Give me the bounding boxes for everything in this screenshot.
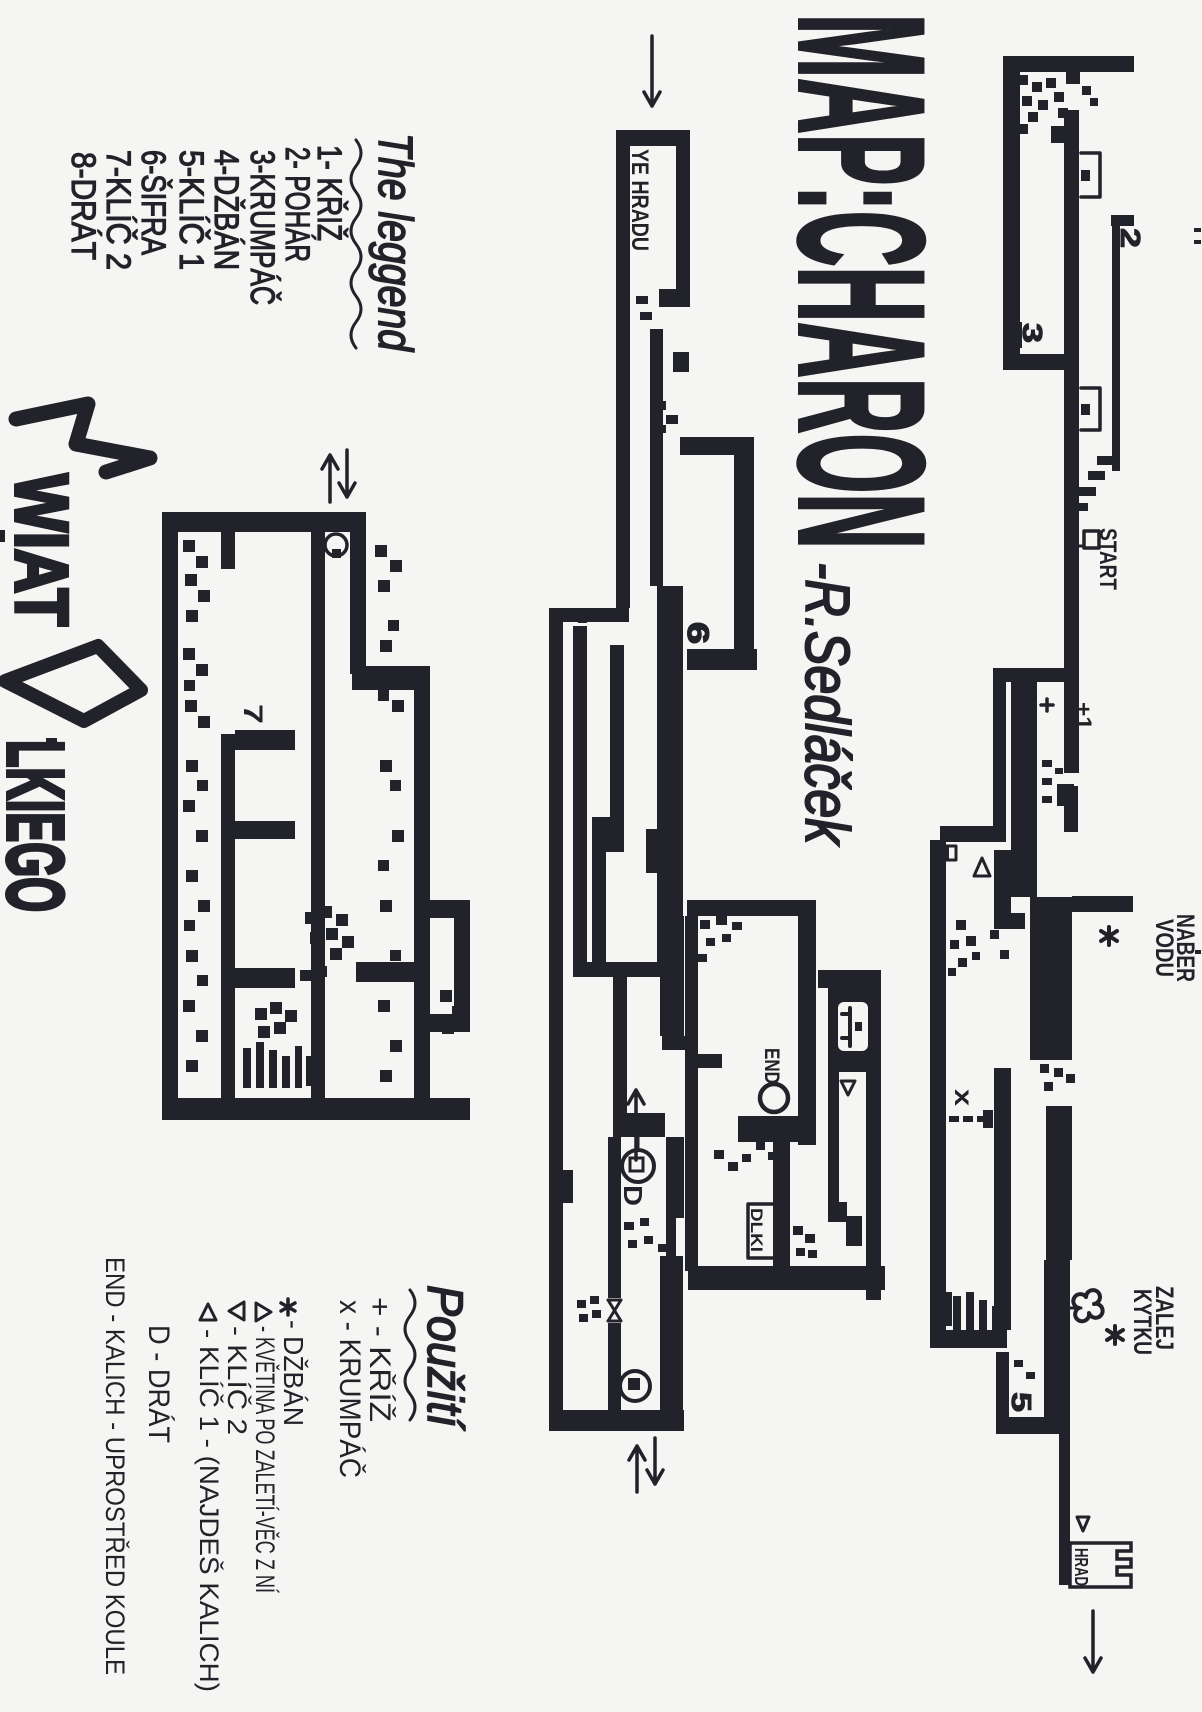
svg-text:5-KLÍČ 1: 5-KLÍČ 1 (172, 150, 210, 270)
svg-text:START: START (1094, 528, 1121, 590)
svg-text:- KLÍČ 2: - KLÍČ 2 (222, 1326, 253, 1435)
svg-text:KYTKU: KYTKU (1128, 1289, 1156, 1355)
svg-text:x: x (949, 1089, 979, 1107)
svg-text:4-DŽBÁN: 4-DŽBÁN (207, 150, 245, 270)
svg-text:- KVĚTINA PO ZALETÍ-VĚC Z NÍ: - KVĚTINA PO ZALETÍ-VĚC Z NÍ (250, 1326, 281, 1593)
svg-text:2- POHÁR: 2- POHÁR (278, 147, 316, 262)
svg-text:HRAD: HRAD (1071, 1548, 1091, 1586)
svg-text:MAP:CHARON: MAP:CHARON (762, 14, 961, 549)
svg-text:-R.Sedláček: -R.Sedláček (792, 562, 861, 847)
svg-text:6-ŠIFRA: 6-ŠIFRA (134, 150, 172, 255)
svg-text:3-KRUMPÁČ: 3-KRUMPÁČ (243, 150, 281, 305)
svg-text:END - KALICH - UPROSTŘED KOULE: END - KALICH - UPROSTŘED KOULE (100, 1257, 131, 1675)
svg-text:+ - KŘÍŽ: + - KŘÍŽ (363, 1297, 396, 1422)
svg-text:3: 3 (1017, 323, 1048, 343)
svg-text:D: D (618, 1185, 648, 1206)
svg-text:Použití: Použití (417, 1285, 473, 1431)
svg-text:D - DRÁT: D - DRÁT (142, 1325, 175, 1443)
svg-text:2: 2 (1115, 228, 1146, 248)
svg-text:5: 5 (1006, 1392, 1037, 1412)
svg-text:x - KRUMPÁČ: x - KRUMPÁČ (333, 1300, 367, 1478)
svg-text:8-DRÁT: 8-DRÁT (64, 152, 102, 260)
svg-text:LKIEGO: LKIEGO (0, 740, 80, 912)
svg-text:- DŽBÁN: - DŽBÁN (278, 1320, 309, 1426)
svg-text:DLKI: DLKI (747, 1208, 766, 1252)
svg-text:6: 6 (681, 622, 714, 644)
svg-text:YE HRADU: YE HRADU (626, 149, 653, 251)
svg-text:WIAT: WIAT (0, 474, 83, 626)
svg-text:- KLÍČ 1 - (NAJDEŠ KALICH): - KLÍČ 1 - (NAJDEŠ KALICH) (194, 1329, 225, 1692)
svg-text:The leggend: The leggend (368, 133, 421, 352)
svg-text:7-KLÍČ 2: 7-KLÍČ 2 (99, 150, 137, 270)
svg-text:END: END (760, 1048, 783, 1084)
svg-text:VODU: VODU (1150, 919, 1178, 977)
svg-text:7: 7 (238, 704, 268, 724)
svg-text:+1: +1 (1071, 702, 1096, 730)
